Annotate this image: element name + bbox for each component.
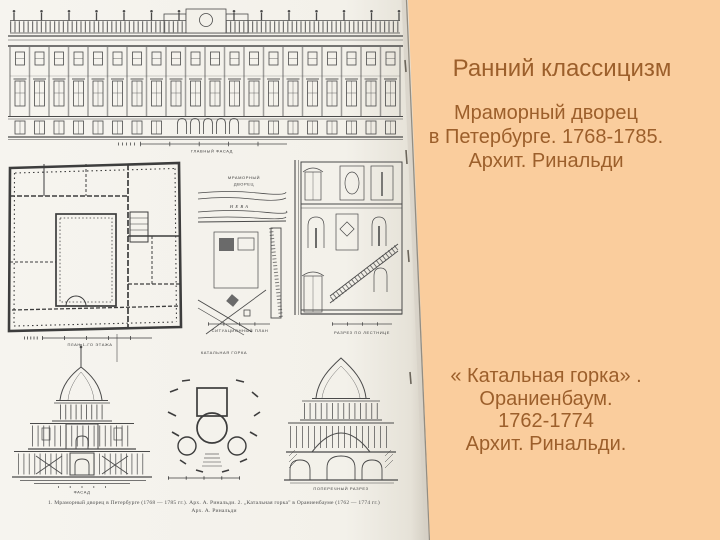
caption-line: 1762-1774: [428, 410, 664, 433]
staircase-section-drawing: [295, 160, 402, 324]
scanned-book-page: ГЛАВНЫЙ ФАСАД: [0, 0, 432, 540]
gorka-plan-drawing: [168, 380, 260, 478]
gorka-facade-label: ФАСАД: [74, 490, 91, 495]
site-plan-drawing: [198, 192, 287, 336]
caption-line: Архит. Ринальди.: [428, 433, 664, 456]
book-caption-line2: Арх. А. Ринальди: [191, 508, 236, 514]
facade-elevation-drawing: [8, 9, 403, 144]
caption-line: Архит. Ринальди: [428, 149, 664, 173]
architectural-drawings-scan: ГЛАВНЫЙ ФАСАД: [0, 0, 432, 540]
slide-background: ГЛАВНЫЙ ФАСАД: [0, 0, 720, 540]
river-neva-label: НЕВА: [229, 204, 250, 209]
site-plan-title-line1: МРАМОРНЫЙ: [228, 175, 260, 180]
caption-line: Ораниенбаум.: [428, 388, 664, 411]
site-scale-label: СИТУАЦИОННЫЙ ПЛАН: [212, 328, 269, 333]
site-plan-title-line2: ДВОРЕЦ: [234, 182, 254, 187]
gorka-section-label: ПОПЕРЕЧНЫЙ РАЗРЕЗ: [313, 486, 368, 491]
gorka-section-drawing: [284, 358, 398, 483]
gorka-elevation-drawing: [12, 344, 152, 487]
facade-scale-label: ГЛАВНЫЙ ФАСАД: [191, 149, 233, 154]
katalnaya-caption-block: « Катальная горка» . Ораниенбаум. 1762-1…: [428, 365, 664, 455]
slide-title: Ранний классицизм: [440, 55, 684, 83]
marble-palace-caption-block: Мраморный дворец в Петербурге. 1768-1785…: [428, 101, 664, 173]
book-caption-line1: 1. Мраморный дворец в Петербурге (1768 —…: [48, 499, 380, 506]
gorka-plan-title: КАТАЛЬНАЯ ГОРКА: [201, 350, 247, 355]
page-edge: [404, 0, 430, 540]
palace-floor-plan-drawing: [9, 163, 181, 362]
caption-line: Мраморный дворец: [428, 101, 664, 125]
caption-line: « Катальная горка» .: [428, 365, 664, 388]
plan-scale-label: ПЛАН 1-ГО ЭТАЖА: [67, 342, 112, 347]
caption-line: в Петербурге. 1768-1785.: [428, 125, 664, 149]
staircase-section-caption: РАЗРЕЗ ПО ЛЕСТНИЦЕ: [334, 330, 390, 335]
